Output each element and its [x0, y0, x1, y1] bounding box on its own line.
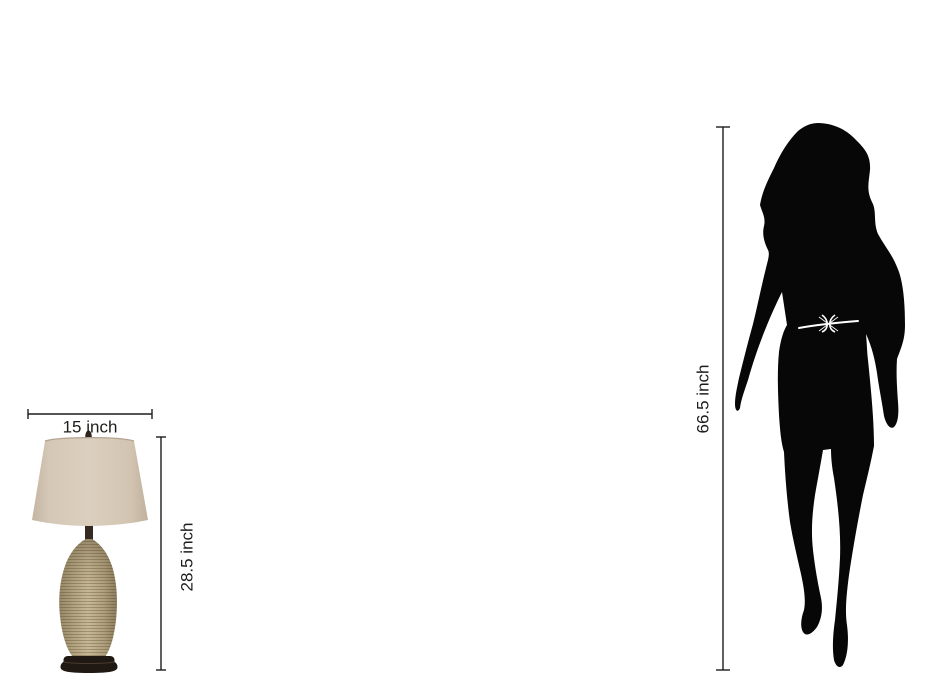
lamp-shade: [32, 438, 148, 526]
woman-silhouette-shape: [735, 123, 905, 667]
person-height-label: 66.5 inch: [695, 365, 712, 434]
scene-canvas: [0, 0, 933, 700]
lamp-ceramic-body-shading: [59, 539, 117, 657]
lamp-foot: [61, 656, 118, 673]
lamp-height-dimension: [156, 437, 166, 670]
lamp-height-label: 28.5 inch: [179, 523, 196, 592]
table-lamp: [32, 431, 148, 674]
product-dimension-diagram: 15 inch 28.5 inch 66.5 inch: [0, 0, 933, 700]
woman-silhouette: [735, 123, 905, 667]
lamp-width-label: 15 inch: [63, 419, 118, 436]
person-height-dimension: [716, 127, 730, 670]
dimension-lines: [28, 127, 730, 670]
